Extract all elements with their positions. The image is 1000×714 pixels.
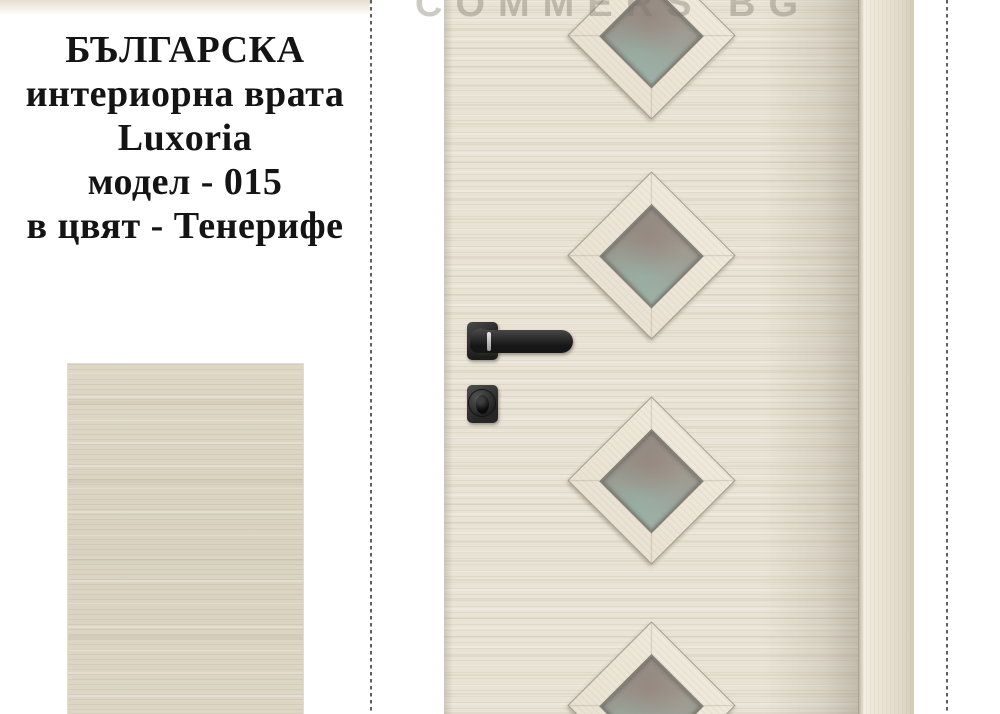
color-swatch-tenerife [68,364,303,714]
glass-pane-3 [599,428,704,533]
keyhole-icon [476,395,489,414]
glass-diamond-3 [567,396,735,564]
product-title-line-series: Luxoria [0,116,370,160]
product-image-canvas: БЪЛГАРСКА интериорна врата Luxoria модел… [0,0,1000,714]
product-title-line-brand: БЪЛГАРСКА [0,28,370,72]
door-leaf [444,0,858,714]
glass-diamond-2 [567,171,735,339]
crop-guide-right [946,0,948,714]
watermark-text: COMMERS BG [415,0,811,26]
glass-pane-2 [599,203,704,308]
door-handle-lever [470,330,573,353]
product-title: БЪЛГАРСКА интериорна врата Luxoria модел… [0,28,370,248]
product-title-line-type: интериорна врата [0,72,370,116]
glass-pane-4 [599,653,704,714]
crop-guide-left [370,0,372,714]
product-title-line-color: в цвят - Тенерифе [0,204,370,248]
door-lock-rosette [467,385,498,423]
glass-diamond-4 [567,621,735,714]
product-title-line-model: модел - 015 [0,160,370,204]
top-tint-strip [0,0,370,15]
door-photo: COMMERS BG [388,0,914,714]
door-frame-left [388,0,444,714]
door-frame-right [858,0,914,714]
